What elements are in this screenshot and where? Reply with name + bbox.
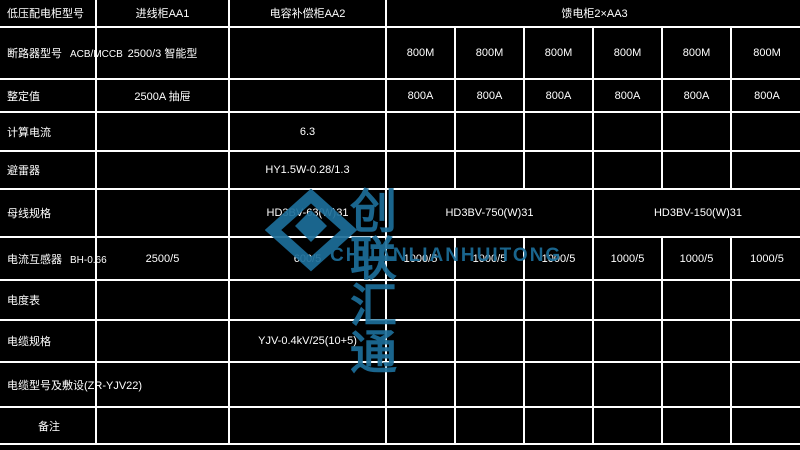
ct-row: 电流互感器BH-0.66 2500/5 600/5 1000/5 1000/5 …	[0, 237, 800, 280]
remark-label: 备注	[0, 407, 96, 444]
setting-feed-1: 800A	[386, 79, 455, 112]
arrester-row: 避雷器 HY1.5W-0.28/1.3	[0, 151, 800, 189]
breaker-model-type: ACB/MCCB	[70, 49, 123, 60]
cable-spec-value: YJV-0.4kV/25(10+5)	[229, 320, 386, 362]
busbar-label: 母线规格	[0, 189, 96, 237]
breaker-feed-3: 800M	[524, 27, 593, 79]
calc-current-row: 计算电流 6.3	[0, 112, 800, 151]
setting-feed-4: 800A	[593, 79, 662, 112]
remark-row: 备注	[0, 407, 800, 444]
setting-feed-5: 800A	[662, 79, 731, 112]
ct-capacitor: 600/5	[229, 237, 386, 280]
header-incoming-cabinet: 进线柜AA1	[96, 0, 229, 27]
busbar-value-3: HD3BV-150(W)31	[593, 189, 800, 237]
ct-feed-1: 1000/5	[386, 237, 455, 280]
calc-current-value: 6.3	[229, 112, 386, 151]
breaker-feed-5: 800M	[662, 27, 731, 79]
arrester-value: HY1.5W-0.28/1.3	[229, 151, 386, 189]
breaker-feed-2: 800M	[455, 27, 524, 79]
ct-feed-6: 1000/5	[731, 237, 800, 280]
ct-model: BH-0.66	[70, 255, 107, 266]
header-feeder-cabinet: 馈电柜2×AA3	[386, 0, 800, 27]
ct-label: 电流互感器BH-0.66	[0, 237, 96, 280]
header-row: 低压配电柜型号 进线柜AA1 电容补偿柜AA2 馈电柜2×AA3	[0, 0, 800, 27]
breaker-feed-1: 800M	[386, 27, 455, 79]
busbar-row: 母线规格 HD3BV-63(W)31 HD3BV-750(W)31 HD3BV-…	[0, 189, 800, 237]
ct-feed-2: 1000/5	[455, 237, 524, 280]
breaker-feed-4: 800M	[593, 27, 662, 79]
ct-incoming: 2500/5	[96, 237, 229, 280]
setting-incoming: 2500A 抽屉	[96, 79, 229, 112]
cable-laying-row: 电缆型号及敷设(ZR-YJV22)	[0, 362, 800, 407]
setting-feed-6: 800A	[731, 79, 800, 112]
busbar-value-1: HD3BV-63(W)31	[229, 189, 386, 237]
breaker-capacitor	[229, 27, 386, 79]
arrester-label: 避雷器	[0, 151, 96, 189]
cable-spec-row: 电缆规格 YJV-0.4kV/25(10+5)	[0, 320, 800, 362]
breaker-row: 断路器型号ACB/MCCB 2500/3 智能型 800M 800M 800M …	[0, 27, 800, 79]
header-col1: 低压配电柜型号	[0, 0, 96, 27]
ct-feed-3: 1000/5	[524, 237, 593, 280]
header-capacitor-cabinet: 电容补偿柜AA2	[229, 0, 386, 27]
setting-capacitor	[229, 79, 386, 112]
breaker-label: 断路器型号ACB/MCCB	[0, 27, 96, 79]
ct-feed-4: 1000/5	[593, 237, 662, 280]
cable-spec-label: 电缆规格	[0, 320, 96, 362]
calc-current-label: 计算电流	[0, 112, 96, 151]
meter-label: 电度表	[0, 280, 96, 320]
setting-row: 整定值 2500A 抽屉 800A 800A 800A 800A 800A 80…	[0, 79, 800, 112]
switchgear-schedule-screenshot: 低压配电柜型号 进线柜AA1 电容补偿柜AA2 馈电柜2×AA3 断路器型号AC…	[0, 0, 800, 450]
breaker-feed-6: 800M	[731, 27, 800, 79]
switchgear-schedule-table: 低压配电柜型号 进线柜AA1 电容补偿柜AA2 馈电柜2×AA3 断路器型号AC…	[0, 0, 800, 445]
setting-label: 整定值	[0, 79, 96, 112]
meter-row: 电度表	[0, 280, 800, 320]
busbar-value-2: HD3BV-750(W)31	[386, 189, 593, 237]
cable-laying-label: 电缆型号及敷设(ZR-YJV22)	[0, 362, 96, 407]
setting-feed-2: 800A	[455, 79, 524, 112]
ct-feed-5: 1000/5	[662, 237, 731, 280]
setting-feed-3: 800A	[524, 79, 593, 112]
